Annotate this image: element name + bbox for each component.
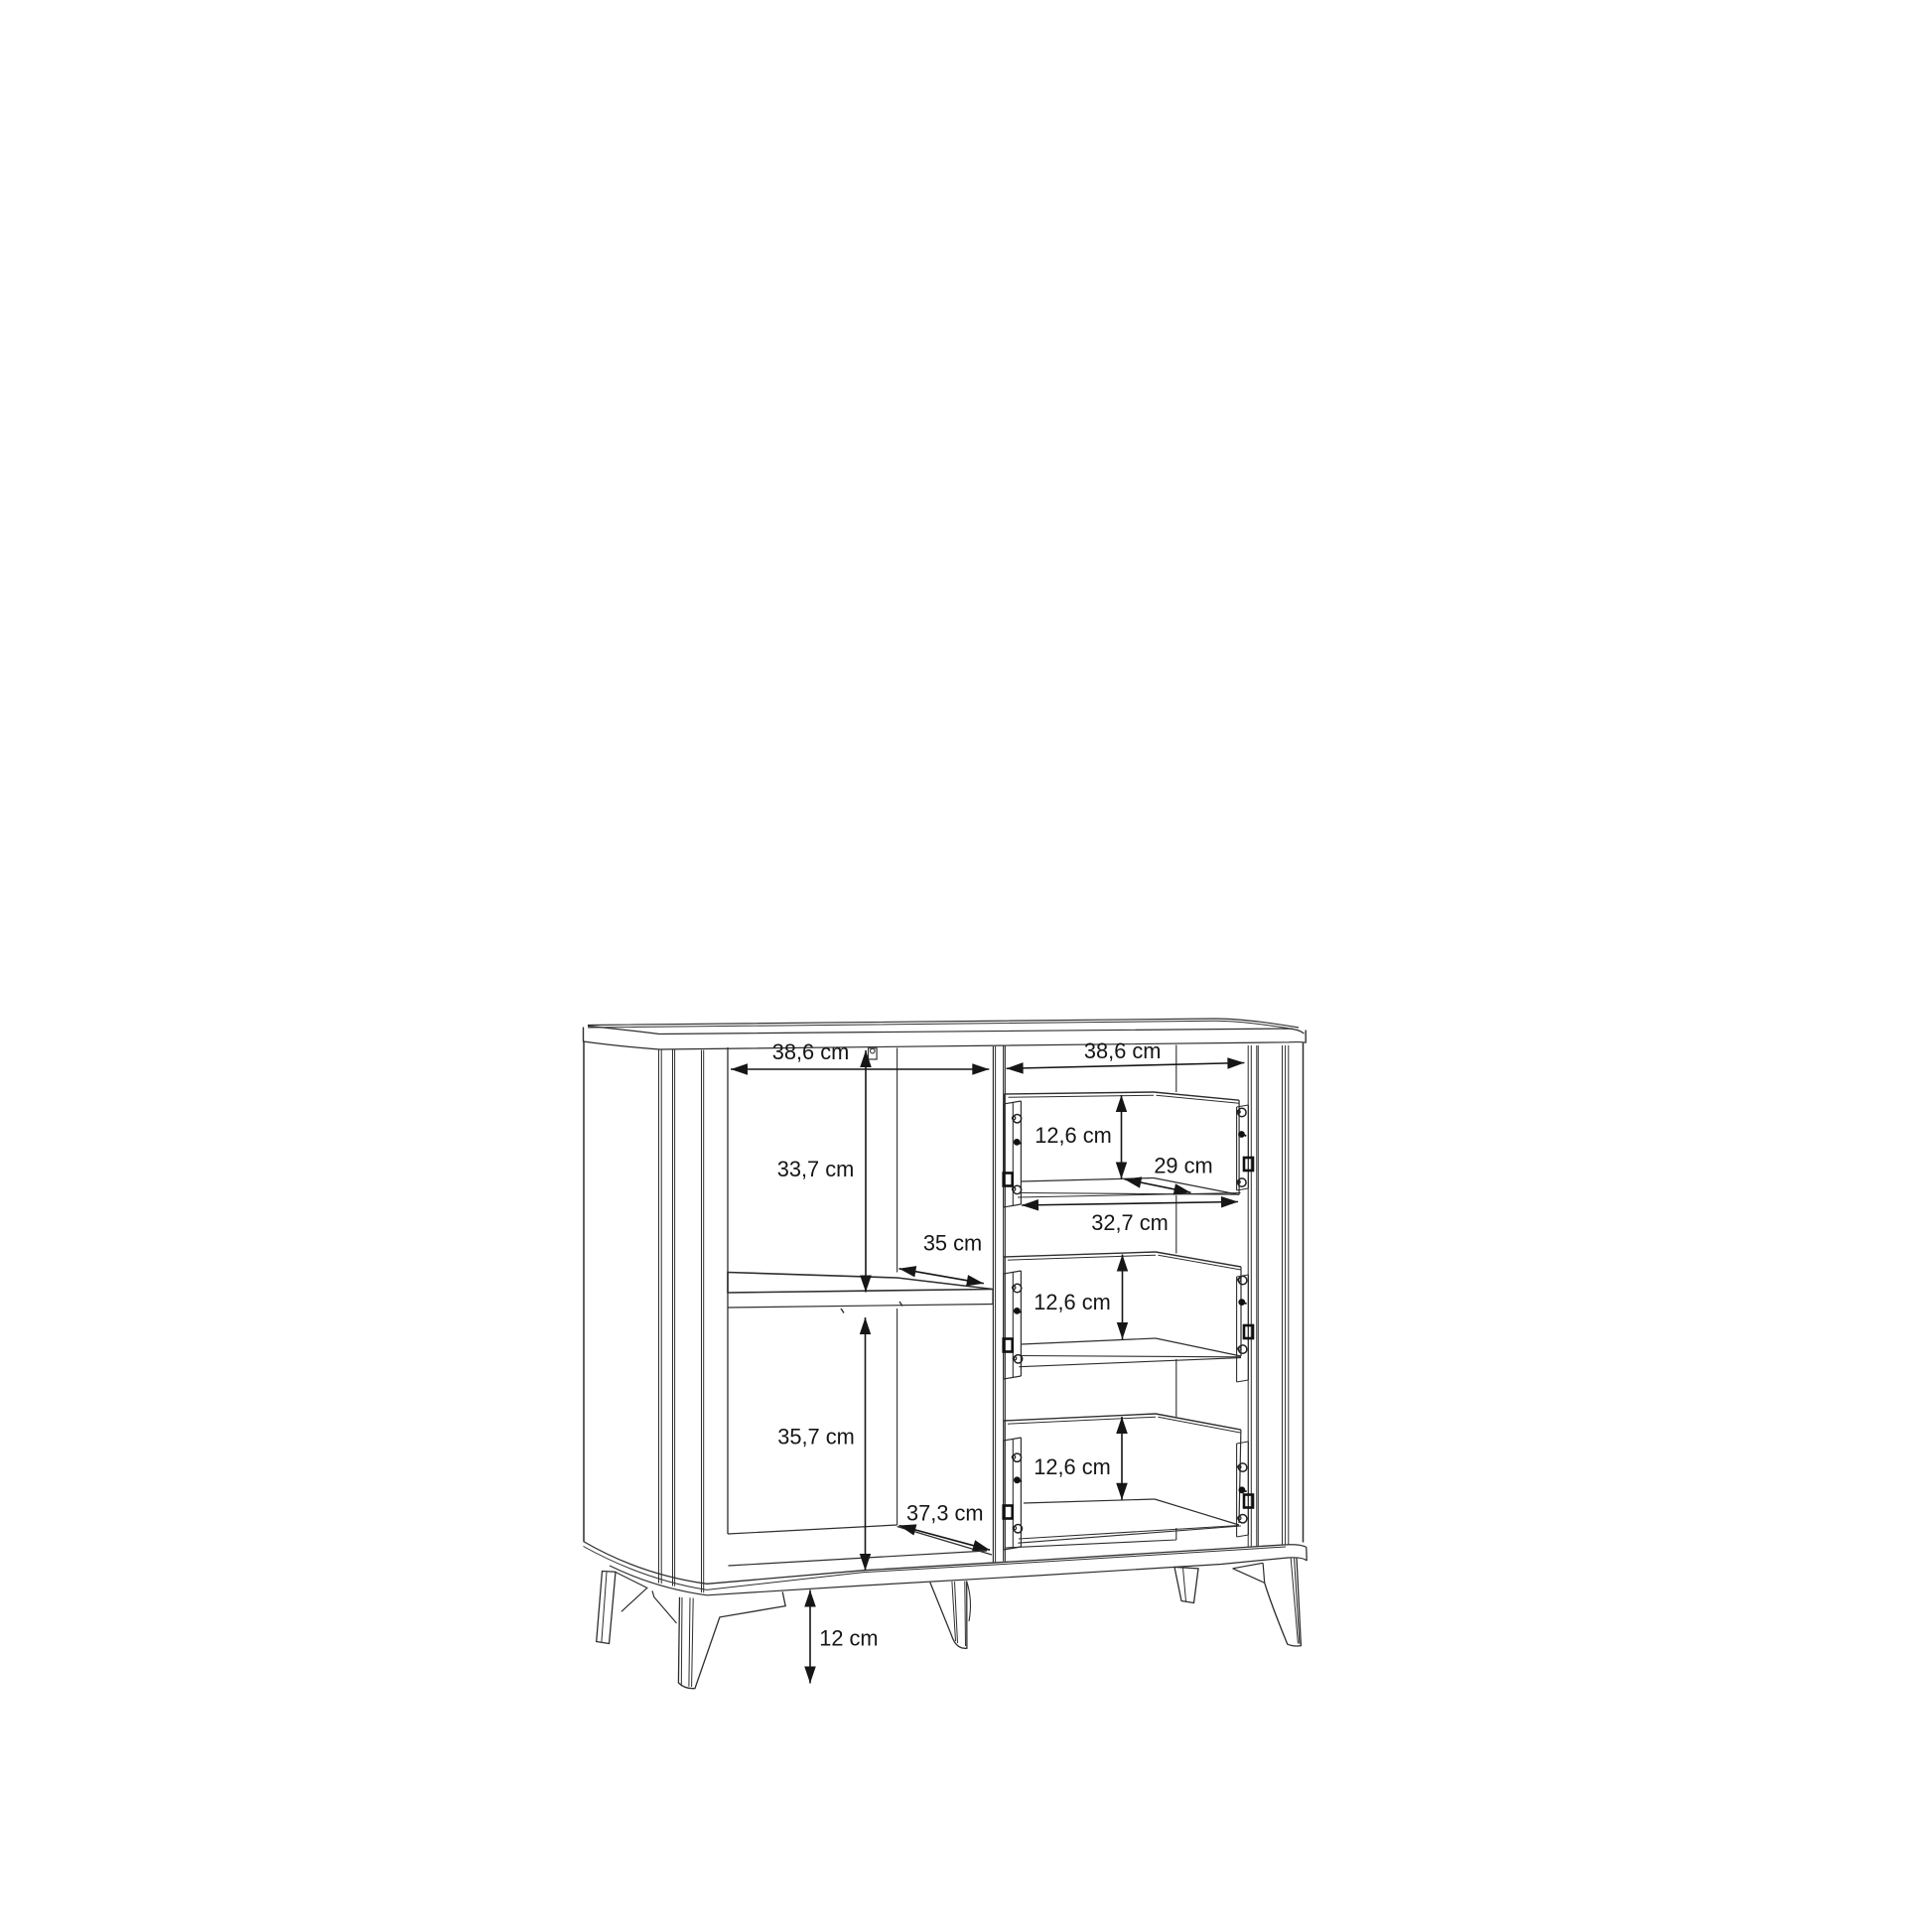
- svg-text:35,7 cm: 35,7 cm: [777, 1425, 855, 1449]
- svg-text:12,6 cm: 12,6 cm: [1034, 1454, 1111, 1479]
- svg-text:12 cm: 12 cm: [819, 1626, 878, 1651]
- svg-text:32,7 cm: 32,7 cm: [1091, 1210, 1169, 1235]
- svg-text:33,7 cm: 33,7 cm: [777, 1157, 855, 1181]
- svg-text:29 cm: 29 cm: [1154, 1154, 1212, 1178]
- svg-text:12,6 cm: 12,6 cm: [1035, 1123, 1112, 1148]
- svg-text:12,6 cm: 12,6 cm: [1034, 1290, 1111, 1314]
- svg-text:35 cm: 35 cm: [923, 1231, 982, 1256]
- svg-text:38,6 cm: 38,6 cm: [772, 1039, 850, 1064]
- svg-text:38,6 cm: 38,6 cm: [1084, 1038, 1162, 1063]
- svg-text:37,3 cm: 37,3 cm: [906, 1501, 984, 1526]
